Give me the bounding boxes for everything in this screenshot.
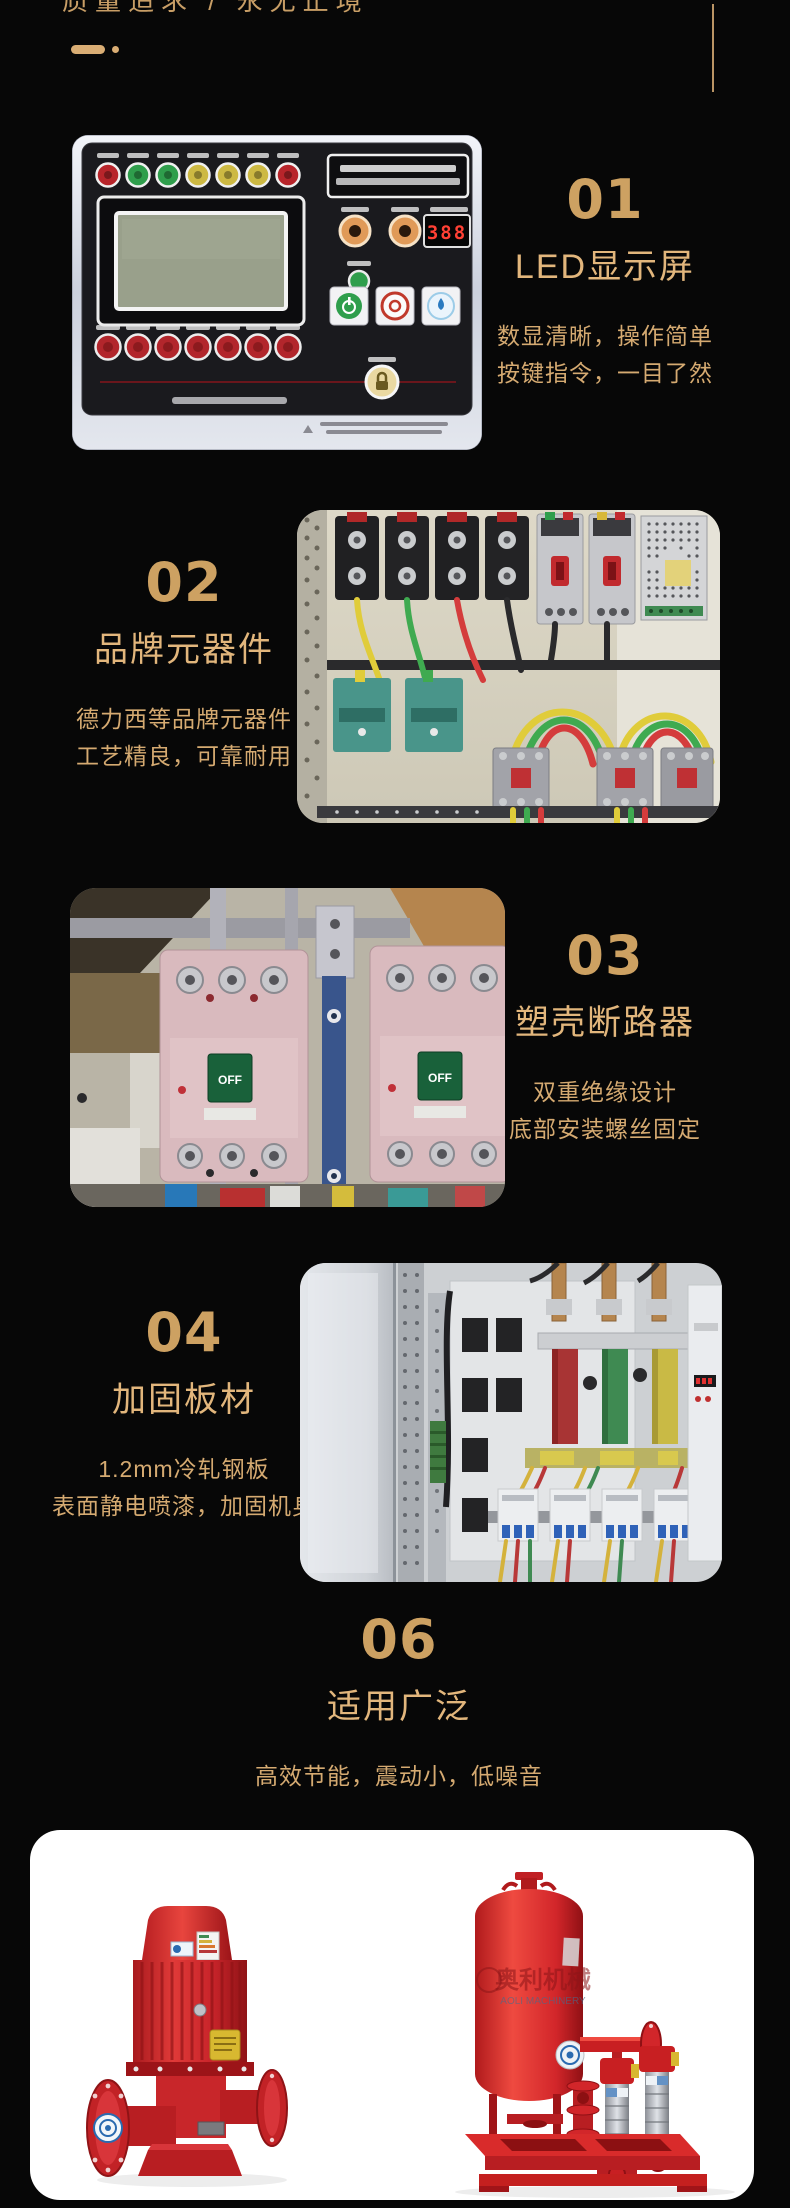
feature-number: 01 bbox=[455, 172, 755, 228]
components-cabinet-photo bbox=[297, 510, 720, 823]
tagline-dot-ornament bbox=[112, 46, 119, 53]
base-skid bbox=[465, 2134, 707, 2192]
control-panel-photo: 388 bbox=[72, 135, 482, 450]
feature-title: LED显示屏 bbox=[455, 245, 755, 289]
phase-straps bbox=[552, 1349, 678, 1444]
svg-text:OFF: OFF bbox=[428, 1071, 452, 1085]
valve-cluster bbox=[567, 2081, 599, 2139]
panel-divider-line bbox=[100, 381, 456, 383]
right-edge-ornament-line bbox=[712, 4, 714, 92]
main-cable bbox=[446, 1291, 450, 1507]
svg-text:奥利机械: 奥利机械 bbox=[495, 1966, 591, 1994]
tagline-dash-ornament bbox=[71, 45, 105, 54]
svg-text:OFF: OFF bbox=[218, 1073, 242, 1087]
molded-case-breaker: OFF bbox=[160, 950, 308, 1182]
nameplate-label bbox=[210, 2030, 240, 2060]
feature-section-06: 06 适用广泛 高效节能，震动小，低噪音 bbox=[249, 1612, 549, 1795]
energy-label bbox=[197, 1932, 219, 1960]
pump-tank-set-photo: 奥利机械 AOLI MACHINERY bbox=[445, 1868, 775, 2198]
feature-number: 06 bbox=[249, 1612, 549, 1668]
contactor-row bbox=[493, 748, 713, 810]
pressure-tank: 奥利机械 AOLI MACHINERY bbox=[475, 1889, 591, 2101]
breakers-photo: OFF bbox=[70, 888, 505, 1207]
feature-desc-line: 按键指令，一目了然 bbox=[455, 355, 755, 392]
feature-number: 03 bbox=[455, 928, 755, 984]
lower-busbar bbox=[525, 1448, 700, 1468]
feature-number: 04 bbox=[34, 1305, 334, 1361]
vertical-pump-photo bbox=[82, 1898, 422, 2188]
feature-section-03: 03 塑壳断路器 双重绝缘设计 底部安装螺丝固定 bbox=[455, 928, 755, 1148]
feature-desc-line: 1.2mm冷轧钢板 bbox=[34, 1451, 334, 1488]
feature-desc-line: 数显清晰，操作简单 bbox=[455, 318, 755, 355]
product-detail-page: 质量追求 / 永无止境 bbox=[0, 0, 790, 2208]
feature-desc-line: 表面静电喷漆，加固机身 bbox=[34, 1488, 334, 1525]
pump-base bbox=[138, 2144, 242, 2176]
discharge-flange bbox=[257, 2070, 287, 2146]
feature-title: 适用广泛 bbox=[249, 1685, 549, 1729]
feature-title: 品牌元器件 bbox=[34, 628, 334, 672]
svg-text:AOLI MACHINERY: AOLI MACHINERY bbox=[500, 1996, 586, 2007]
reinforced-cabinet-photo bbox=[300, 1263, 722, 1582]
feature-desc-line: 德力西等品牌元器件 bbox=[34, 701, 334, 738]
meter-panel bbox=[688, 1285, 722, 1561]
feature-section-02: 02 品牌元器件 德力西等品牌元器件 工艺精良，可靠耐用 bbox=[34, 555, 334, 775]
page-tagline: 质量追求 / 永无止境 bbox=[62, 0, 369, 16]
feature-desc-line: 底部安装螺丝固定 bbox=[455, 1111, 755, 1148]
feature-desc-line: 双重绝缘设计 bbox=[455, 1074, 755, 1111]
feature-title: 塑壳断路器 bbox=[455, 1001, 755, 1045]
feature-desc-line: 高效节能，震动小，低噪音 bbox=[249, 1758, 549, 1795]
terminal-block bbox=[430, 1421, 446, 1483]
feature-desc-line: 工艺精良，可靠耐用 bbox=[34, 738, 334, 775]
power-supply-unit bbox=[641, 516, 707, 620]
mounting-rail bbox=[297, 510, 327, 823]
start-button bbox=[330, 287, 368, 325]
bottom-components bbox=[70, 1184, 505, 1207]
feature-number: 02 bbox=[34, 555, 334, 611]
panel-model-text bbox=[172, 397, 287, 404]
pump-volute bbox=[116, 2076, 264, 2146]
feature-section-04: 04 加固板材 1.2mm冷轧钢板 表面静电喷漆，加固机身 bbox=[34, 1305, 334, 1525]
lcd-screen bbox=[98, 197, 304, 325]
feature-section-01: 01 LED显示屏 数显清晰，操作简单 按键指令，一目了然 bbox=[455, 172, 755, 392]
feature-title: 加固板材 bbox=[34, 1378, 334, 1422]
suction-flange bbox=[87, 2080, 129, 2176]
stop-button bbox=[376, 287, 414, 325]
panel-nameplate bbox=[328, 155, 468, 197]
